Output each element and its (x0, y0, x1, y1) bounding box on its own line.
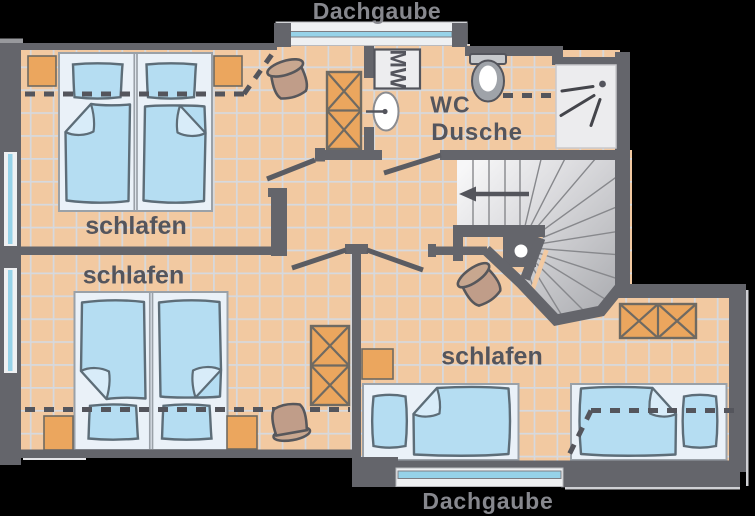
svg-text:schlafen: schlafen (441, 343, 542, 371)
svg-text:Dusche: Dusche (431, 119, 523, 146)
svg-text:MW: MW (386, 49, 411, 88)
svg-text:WC: WC (430, 92, 471, 118)
svg-text:schlafen: schlafen (83, 262, 184, 290)
svg-text:Dachgaube: Dachgaube (422, 488, 553, 514)
svg-text:schlafen: schlafen (85, 212, 186, 240)
svg-text:Dachgaube: Dachgaube (313, 0, 441, 24)
